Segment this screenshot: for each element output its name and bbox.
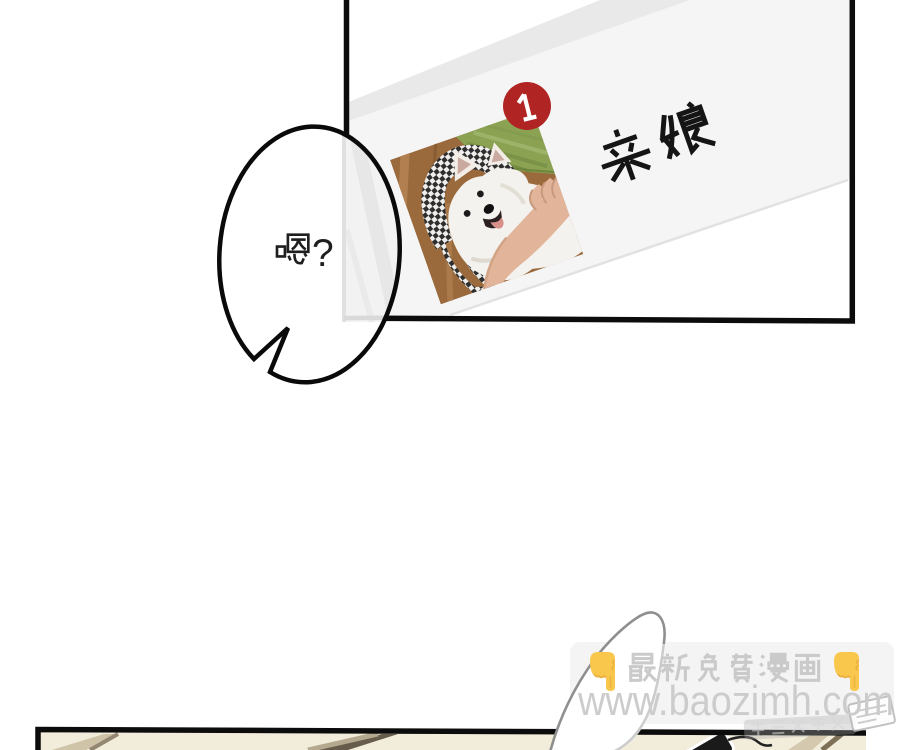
- svg-text:www.baozimh.com: www.baozimh.com: [577, 677, 894, 724]
- svg-text:?: ?: [312, 232, 334, 275]
